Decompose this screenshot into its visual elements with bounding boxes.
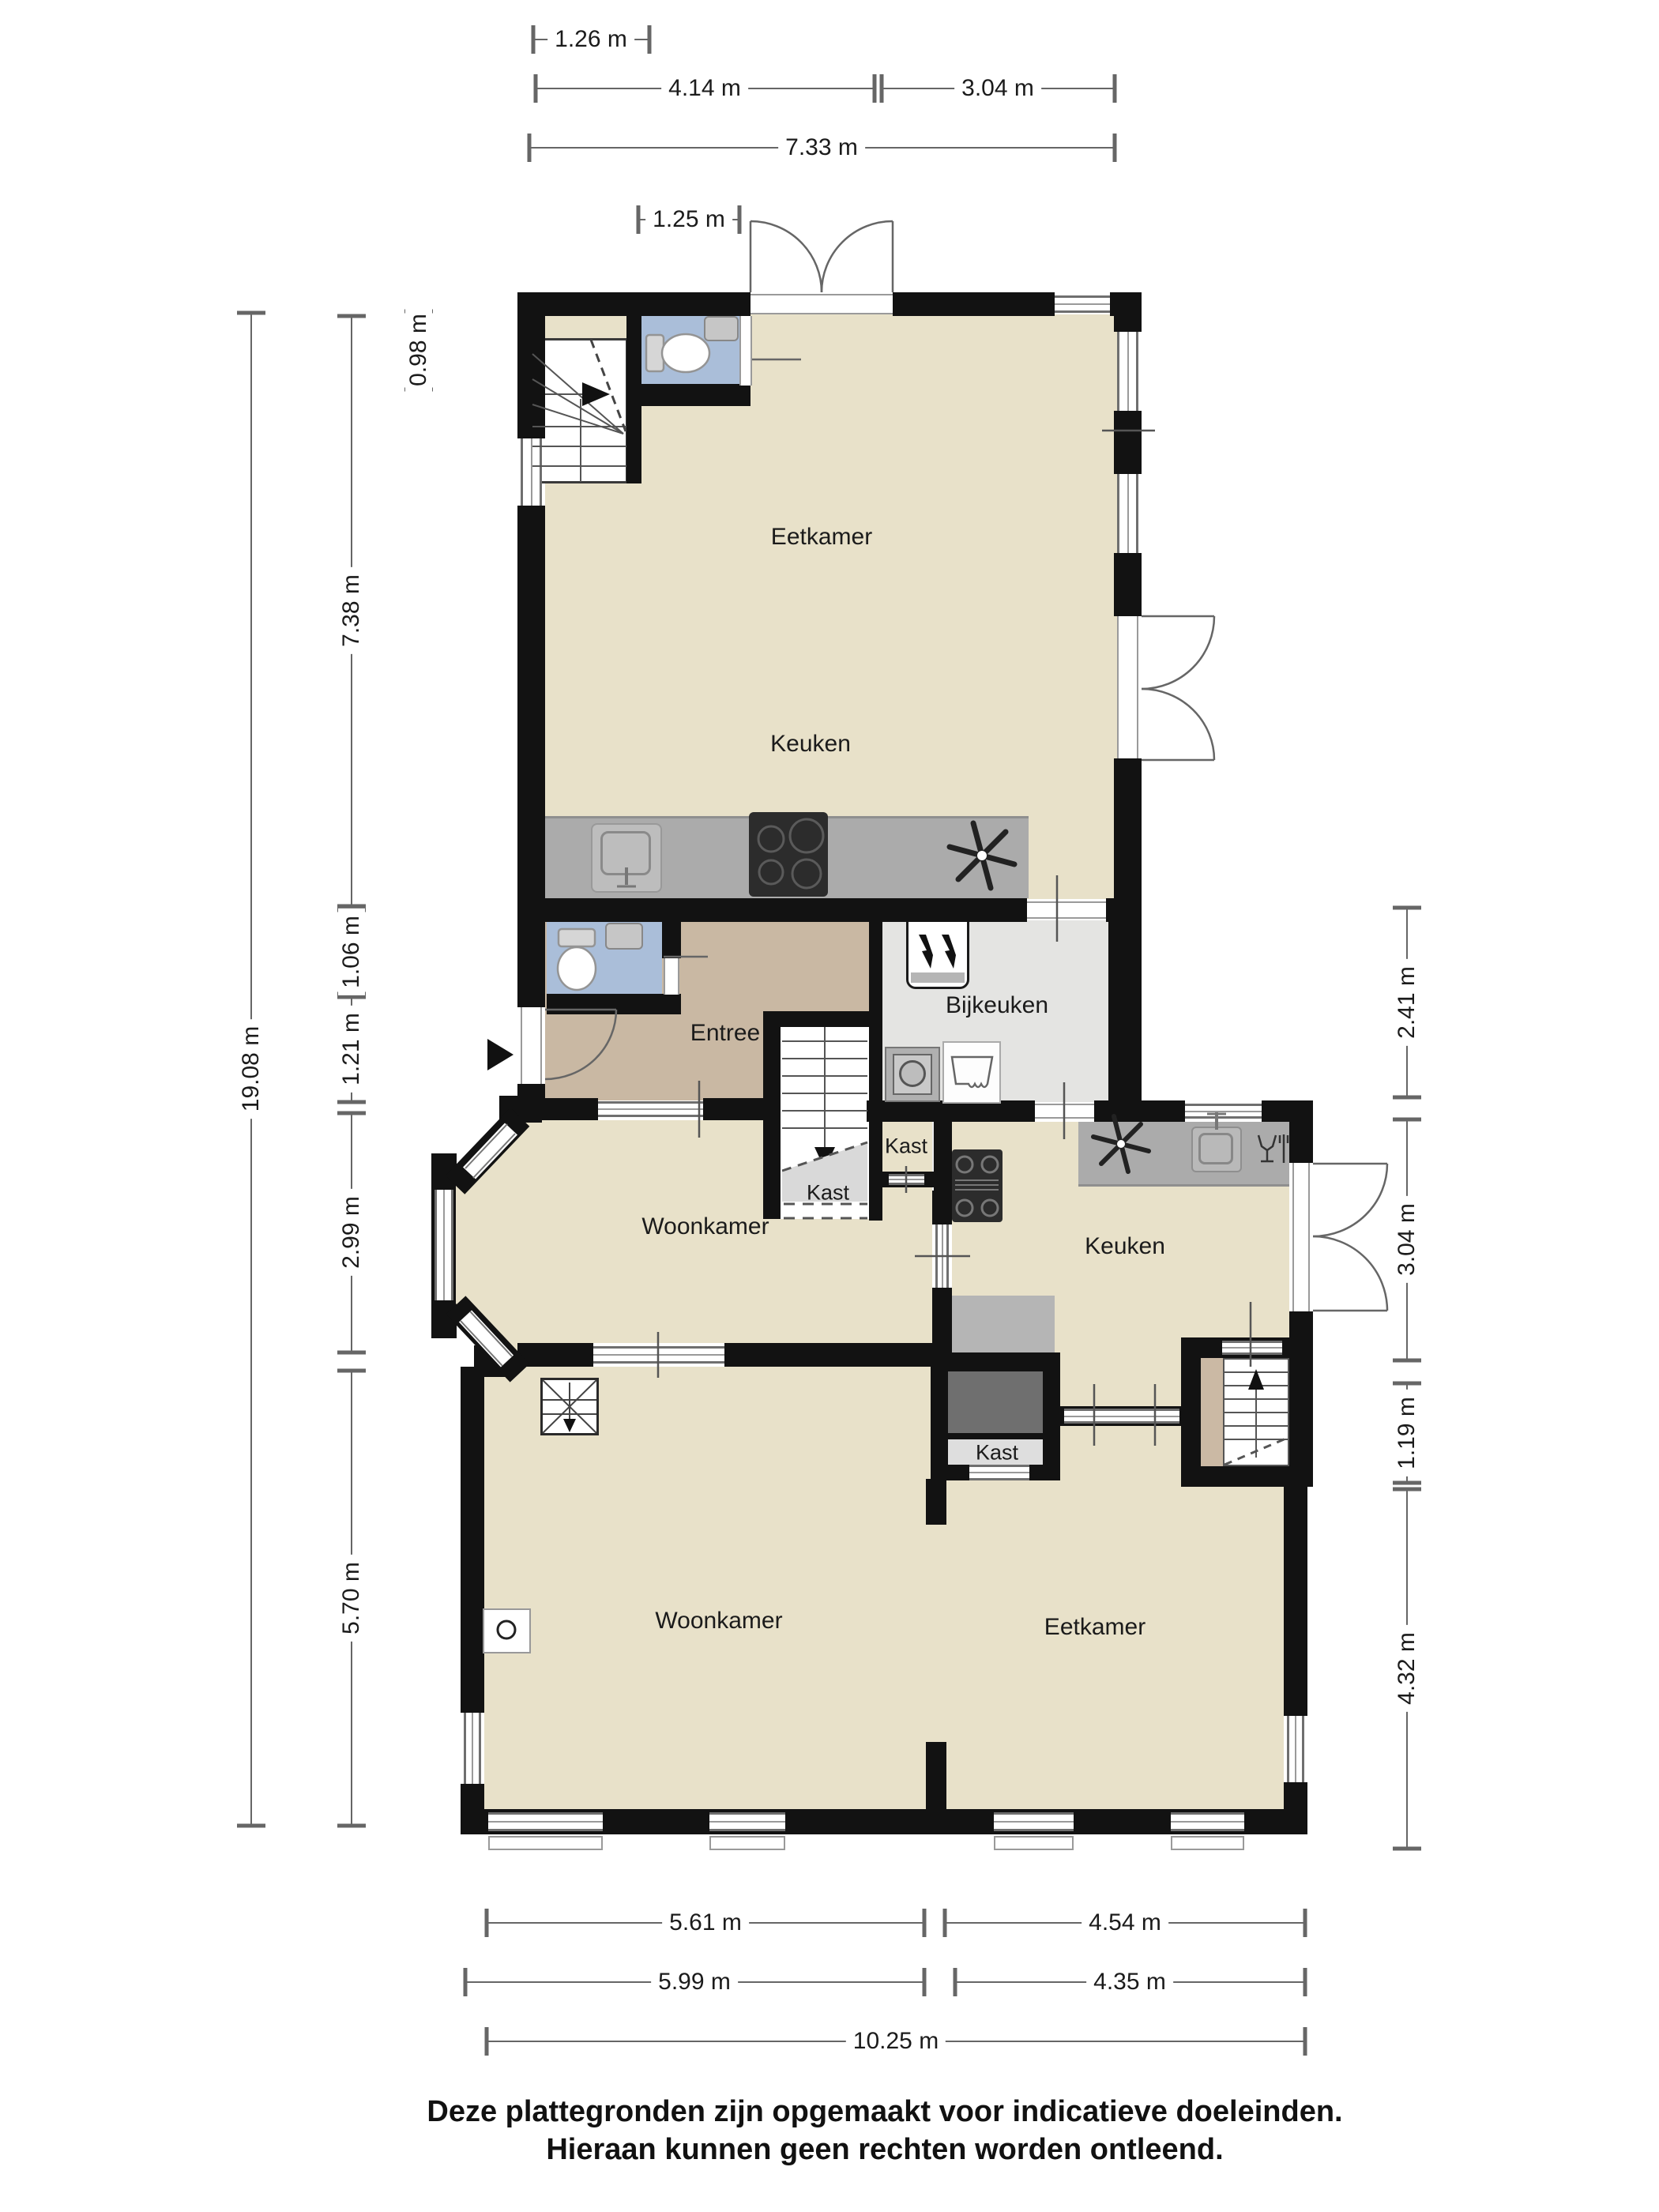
dim-label: 3.04 m (1394, 1196, 1420, 1283)
window (709, 1812, 785, 1831)
loft-hatch-icon (540, 1378, 599, 1435)
entrance-arrow-icon (487, 1039, 513, 1070)
dim-label: 4.54 m (1082, 1909, 1168, 1936)
dim-label: 7.33 m (778, 134, 865, 161)
bay-floor (456, 1120, 517, 1365)
laundry-sink-icon (942, 1041, 1001, 1104)
dim-label: 4.35 m (1086, 1969, 1173, 1996)
kitchen-counter-mid (1078, 1122, 1289, 1187)
dim-label: 4.32 m (1394, 1625, 1420, 1712)
room-label-kast-side: Kast (885, 1134, 927, 1159)
french-doors-top-right (1117, 616, 1138, 758)
stairs-bottom-right (1223, 1358, 1289, 1466)
room-label-entree: Entree (690, 1020, 760, 1047)
room-label-keuken-mid: Keuken (1085, 1233, 1165, 1260)
interior-window (1064, 1409, 1179, 1424)
room-bottom-section (484, 1367, 1284, 1811)
dim-label: 1.06 m (338, 908, 365, 995)
room-label-bijkeuken: Bijkeuken (946, 992, 1048, 1019)
dim-label: 19.08 m (238, 1019, 265, 1119)
stairs-bottom-right-landing (1201, 1358, 1223, 1466)
window (1171, 1812, 1244, 1831)
dim-label: 4.14 m (661, 75, 748, 102)
window (1117, 474, 1138, 553)
washing-machine-icon (885, 1047, 940, 1102)
room-label-keuken-top: Keuken (770, 731, 851, 758)
counter-block (952, 1296, 1055, 1354)
wc-door-top (739, 316, 752, 386)
dim-label: 1.19 m (1394, 1390, 1420, 1477)
kitchen-sink-icon (591, 823, 662, 893)
bay-window (434, 1190, 453, 1300)
window (994, 1812, 1074, 1831)
dim-label: 1.21 m (338, 1006, 365, 1093)
room-label-kast-mid: Kast (976, 1441, 1018, 1465)
window (889, 1174, 924, 1185)
window (1222, 1341, 1282, 1355)
interior-window (593, 1346, 724, 1364)
wc-door-mid (664, 958, 679, 995)
stairs-top-left (531, 338, 628, 483)
window (1185, 1104, 1262, 1119)
window (464, 1713, 481, 1784)
dim-label: 5.61 m (662, 1909, 749, 1936)
room-label-woonkamer-bottom: Woonkamer (655, 1608, 782, 1635)
dim-label: 5.99 m (651, 1969, 738, 1996)
dim-label: 2.99 m (338, 1189, 365, 1276)
window (598, 1101, 703, 1117)
dim-label: 0.98 m (405, 307, 432, 393)
interior-window (935, 1224, 949, 1288)
disclaimer-line2: Hieraan kunnen geen rechten worden ontle… (332, 2133, 1438, 2167)
washbasin-icon (704, 316, 739, 341)
cooktop-icon (749, 812, 828, 897)
window (521, 438, 542, 506)
window (969, 1465, 1029, 1480)
front-door (521, 1007, 542, 1084)
room-wc-mid (547, 920, 662, 995)
window (1287, 1716, 1304, 1782)
double-door-top (750, 294, 893, 314)
dim-label: 5.70 m (338, 1555, 365, 1642)
window (1055, 295, 1110, 313)
room-label-eetkamer-top: Eetkamer (771, 524, 872, 551)
fireplace-icon (483, 1608, 531, 1653)
boiler-icon (906, 922, 969, 989)
room-label-eetkamer-bottom: Eetkamer (1044, 1614, 1145, 1641)
door-bijkeuken-keuken (1035, 1104, 1094, 1119)
french-doors-mid-right (1292, 1163, 1310, 1311)
dim-label: 7.38 m (338, 567, 365, 654)
stove-icon (952, 1149, 1003, 1222)
disclaimer-line1: Deze plattegronden zijn opgemaakt voor i… (332, 2095, 1438, 2129)
window (1117, 332, 1138, 411)
dim-label: 10.25 m (846, 2028, 946, 2055)
door-keuken-bijkeuken (1027, 901, 1106, 919)
floor-plan: 1.26 m 4.14 m 3.04 m 7.33 m 1.25 m 0.98 … (0, 0, 1659, 2212)
room-label-woonkamer-mid: Woonkamer (641, 1213, 769, 1240)
dim-label: 3.04 m (954, 75, 1041, 102)
window (488, 1812, 603, 1831)
dim-label: 2.41 m (1394, 959, 1420, 1046)
washbasin-icon (605, 923, 643, 950)
room-label-kast-understairs: Kast (807, 1181, 849, 1206)
dim-label: 1.25 m (645, 206, 732, 233)
kitchen-sink-icon (1191, 1127, 1242, 1172)
dim-label: 1.26 m (547, 26, 634, 53)
